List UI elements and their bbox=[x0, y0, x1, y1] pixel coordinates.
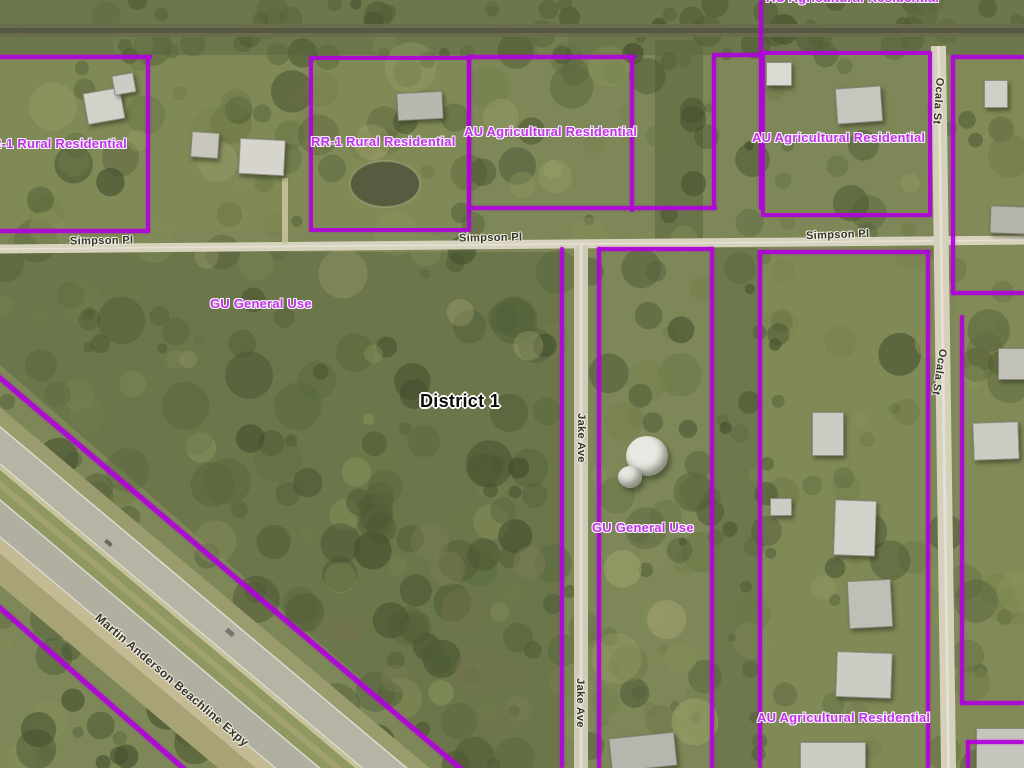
zone-label-rr1: RR-1 Rural Residential bbox=[311, 135, 456, 149]
parcel-boundary bbox=[758, 250, 930, 254]
parcel-boundary bbox=[712, 55, 716, 210]
building bbox=[770, 498, 792, 516]
parcel-boundary bbox=[0, 229, 150, 233]
district-label: District 1 bbox=[420, 391, 500, 412]
parcel-boundary bbox=[926, 250, 930, 768]
zone-label-au-top: AU Agricultural Residential bbox=[766, 0, 939, 5]
parcel-boundary bbox=[951, 291, 1024, 295]
parcel-boundary bbox=[597, 247, 601, 768]
parcel-boundary bbox=[560, 247, 564, 768]
road-label-simpson-pl: Simpson Pl bbox=[806, 228, 870, 242]
parcel-boundary bbox=[146, 55, 150, 233]
building bbox=[190, 131, 220, 159]
building bbox=[111, 72, 136, 96]
zone-label-rr1-clipped: R-1 Rural Residential bbox=[0, 137, 127, 151]
building bbox=[972, 421, 1019, 461]
building bbox=[618, 466, 642, 488]
building bbox=[835, 651, 893, 699]
zone-label-gu-upper: GU General Use bbox=[210, 297, 312, 311]
parcel-boundary bbox=[966, 740, 970, 768]
road-label-jake-ave: Jake Ave bbox=[575, 413, 587, 463]
parcel-boundary bbox=[951, 55, 955, 295]
parcel-boundary bbox=[951, 55, 1024, 59]
parcel-boundary bbox=[467, 206, 717, 210]
parcel-boundary bbox=[758, 250, 762, 768]
zone-label-gu-lower: GU General Use bbox=[592, 521, 694, 535]
parcel-boundary bbox=[0, 55, 152, 59]
building bbox=[800, 742, 866, 768]
building bbox=[608, 732, 677, 768]
building bbox=[812, 412, 844, 456]
map-canvas[interactable]: R-1 Rural Residential RR-1 Rural Residen… bbox=[0, 0, 1024, 768]
parcel-boundary bbox=[710, 247, 714, 768]
parcel-boundary bbox=[712, 53, 765, 57]
building bbox=[976, 728, 1024, 768]
parcel-boundary bbox=[960, 315, 964, 705]
zone-label-au-right: AU Agricultural Residential bbox=[752, 131, 925, 145]
parcel-boundary bbox=[597, 247, 714, 251]
road-label-simpson-pl: Simpson Pl bbox=[70, 234, 134, 247]
building bbox=[998, 348, 1024, 380]
parcel-boundary bbox=[966, 740, 1024, 744]
zone-label-au-bottom: AU Agricultural Residential bbox=[757, 711, 930, 725]
building bbox=[238, 138, 286, 176]
building bbox=[833, 499, 877, 556]
building bbox=[847, 579, 893, 629]
road-label-jake-ave: Jake Ave bbox=[574, 678, 586, 728]
building bbox=[984, 80, 1008, 108]
road-label-simpson-pl: Simpson Pl bbox=[459, 231, 523, 244]
parcel-boundary bbox=[467, 55, 636, 59]
building bbox=[990, 205, 1024, 234]
parcel-boundary bbox=[960, 701, 1024, 705]
zone-label-au-middle: AU Agricultural Residential bbox=[464, 125, 637, 139]
